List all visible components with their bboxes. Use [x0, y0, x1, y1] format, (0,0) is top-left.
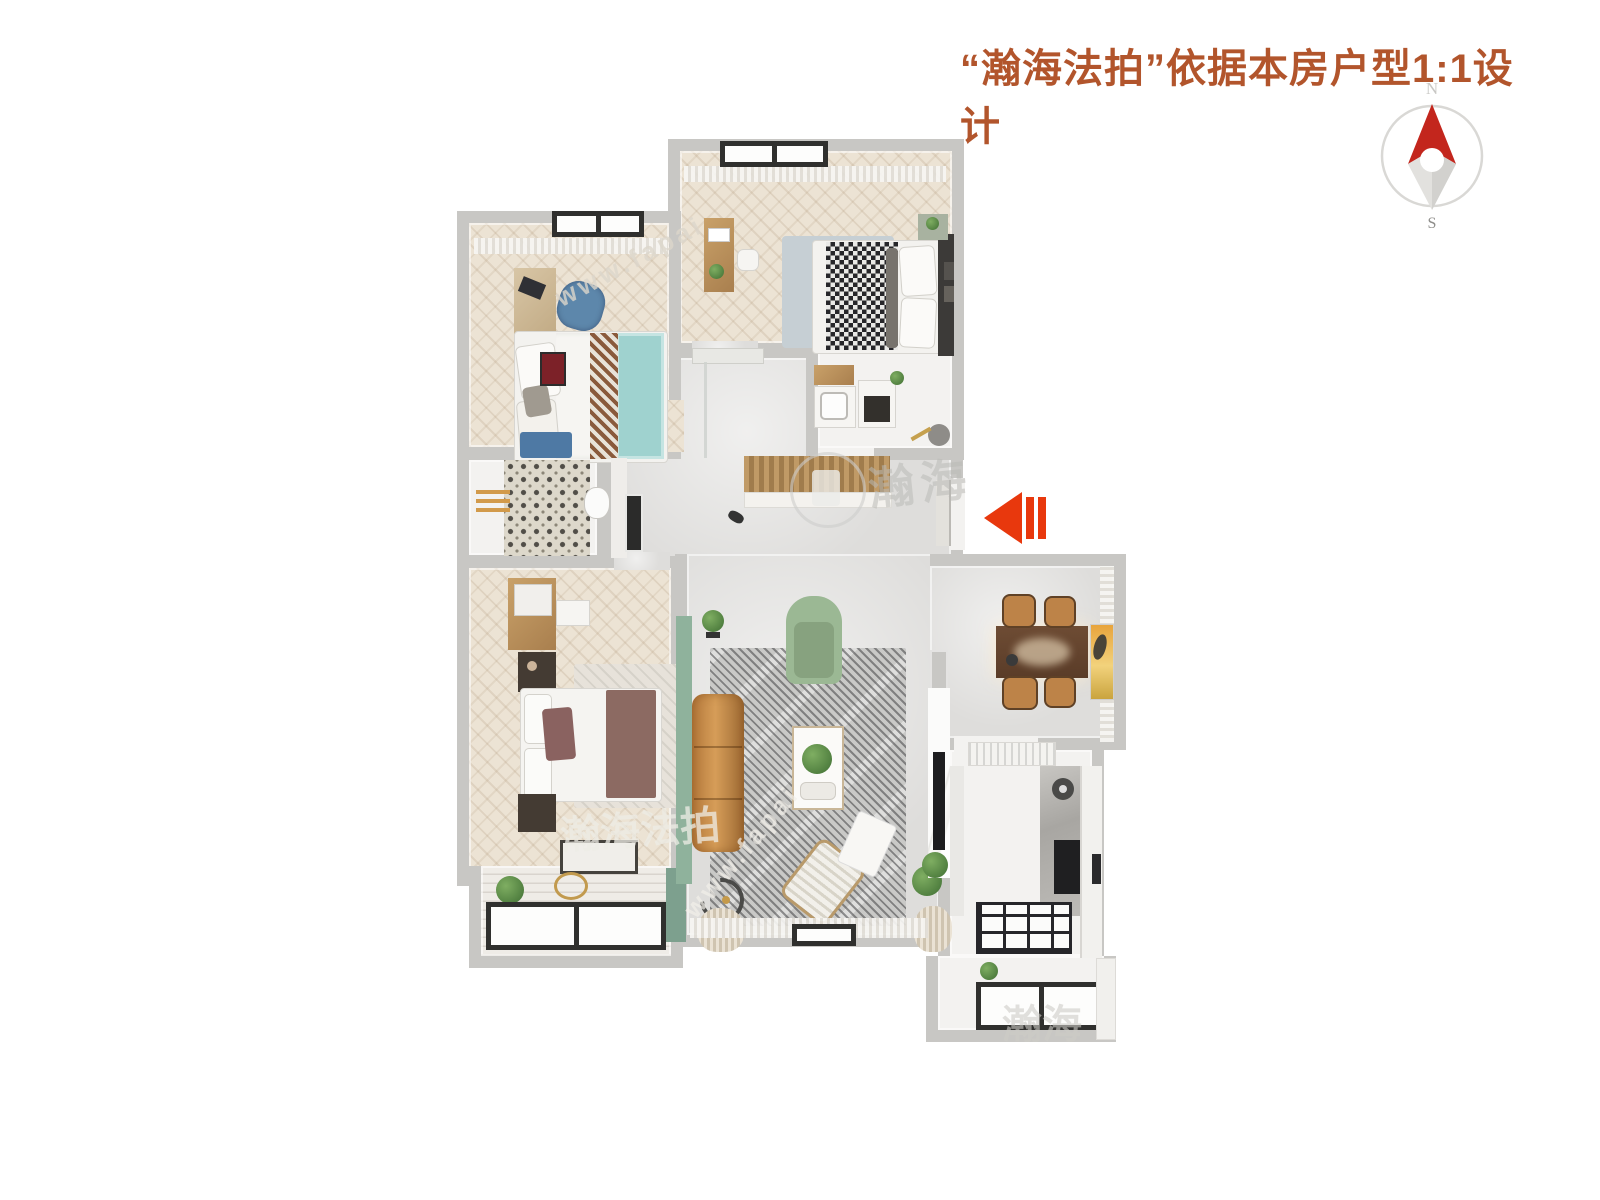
nightstand: [518, 794, 556, 832]
wall-art: [944, 262, 954, 280]
coffee-table-plant: [802, 744, 832, 774]
nightstand: [518, 652, 556, 692]
bench-blue: [520, 432, 572, 458]
balcony-plant: [496, 876, 524, 904]
sink: [820, 392, 848, 420]
bed-pillow-accent: [522, 384, 553, 418]
bathroom-plant: [890, 371, 904, 385]
tv-screen: [933, 752, 945, 850]
balcony-window: [486, 902, 666, 950]
range-hood-center: [1059, 785, 1067, 793]
desk-papers: [708, 228, 730, 242]
desk: [514, 268, 556, 334]
floorplan-page: 瀚海 瀚海法拍 瀚海 www.fapai www.fapai “瀚海法拍”依据本…: [0, 0, 1600, 1200]
wardrobe-shelf: [514, 584, 552, 616]
wall-art: [944, 286, 954, 302]
watermark-text: 瀚海: [1002, 992, 1082, 1050]
watermark-text: 瀚海法拍: [558, 792, 722, 861]
watermark-text: 瀚海: [865, 443, 975, 520]
glass-divider: [704, 362, 707, 458]
bed-blanket-teal: [616, 333, 664, 459]
plant-stand: [706, 632, 720, 638]
plant: [702, 610, 724, 632]
dining-chair: [1044, 676, 1076, 708]
cabinet-handle-black: [1092, 854, 1101, 884]
dresser: [556, 600, 590, 626]
toilet: [584, 487, 610, 519]
dining-chair: [1002, 676, 1038, 710]
dining-chair: [1044, 596, 1076, 628]
bathroom-tile-floor: [504, 460, 590, 556]
lounge-chair-seat: [794, 622, 834, 678]
plant: [922, 852, 948, 878]
nightstand-plant: [926, 217, 939, 230]
vanity-mirror: [814, 365, 854, 385]
bed-pillow-dark: [886, 248, 898, 348]
watermark-logo-inner: [812, 470, 840, 506]
desk-plant: [709, 264, 724, 279]
window: [552, 211, 644, 237]
entry-arrow-icon: [984, 492, 1046, 544]
shower-head: [928, 424, 950, 446]
bed-pillow: [899, 297, 938, 349]
compass-hub: [1420, 148, 1444, 172]
bed-runner-patterned: [590, 333, 618, 459]
hanging-hoop-gold: [554, 872, 588, 900]
table-vase: [1006, 654, 1018, 666]
full-length-mirror: [625, 494, 643, 552]
balcony-plant: [980, 962, 998, 980]
compass-rose: N S: [1376, 78, 1488, 230]
curtain: [684, 166, 946, 182]
dining-chair: [1002, 594, 1036, 628]
toilet-art: [864, 396, 890, 422]
kitchen-grid-floor: [976, 902, 1072, 954]
kitchen-glass-wall: [950, 766, 964, 916]
bed-pillow: [898, 245, 937, 297]
entry-glass-panel: [692, 348, 764, 364]
nightstand-lamp: [527, 661, 537, 671]
window: [720, 141, 828, 167]
column: [1096, 958, 1116, 1040]
counter-vent: [968, 742, 1056, 766]
towel-rack-wood: [476, 486, 510, 512]
compass-south-label: S: [1428, 215, 1437, 230]
window: [792, 924, 856, 946]
stool: [737, 249, 759, 271]
bed-blanket-mauve: [606, 690, 656, 798]
compass-north-label: N: [1426, 79, 1438, 98]
bed-pillow-mauve: [542, 707, 576, 761]
cooktop-black: [1054, 840, 1080, 894]
artwork-red: [540, 352, 566, 386]
dining-table-glow: [1014, 638, 1070, 666]
sofa-seam: [694, 746, 742, 748]
